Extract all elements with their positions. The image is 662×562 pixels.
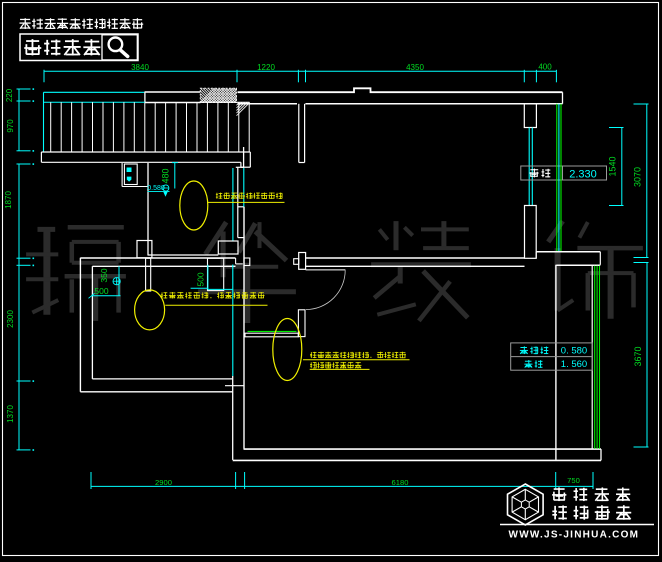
svg-text:480: 480 <box>160 168 170 183</box>
svg-text:1. 560: 1. 560 <box>561 359 587 370</box>
svg-text:500: 500 <box>94 286 108 296</box>
svg-text:750: 750 <box>567 476 580 485</box>
svg-text:WWW.JS-JINHUA.COM: WWW.JS-JINHUA.COM <box>509 529 640 540</box>
svg-text:1540: 1540 <box>607 156 617 176</box>
svg-text:2.330: 2.330 <box>569 169 597 181</box>
svg-text:3070: 3070 <box>632 167 642 187</box>
svg-text:3840: 3840 <box>131 63 149 72</box>
svg-text:970: 970 <box>6 119 15 133</box>
svg-text:2300: 2300 <box>6 310 15 328</box>
svg-text:500: 500 <box>195 272 205 286</box>
svg-text:3670: 3670 <box>633 346 643 366</box>
svg-text:6180: 6180 <box>392 478 409 487</box>
svg-text:1870: 1870 <box>4 191 13 209</box>
svg-text:350: 350 <box>99 268 109 282</box>
svg-text:220: 220 <box>5 88 14 102</box>
svg-text:1220: 1220 <box>257 63 275 72</box>
svg-text:0. 580: 0. 580 <box>561 345 587 356</box>
svg-text:1370: 1370 <box>6 405 15 423</box>
svg-text:4350: 4350 <box>406 63 424 72</box>
svg-text:2900: 2900 <box>155 478 172 487</box>
svg-text:0.580: 0.580 <box>147 185 165 192</box>
svg-text:400: 400 <box>538 62 552 71</box>
